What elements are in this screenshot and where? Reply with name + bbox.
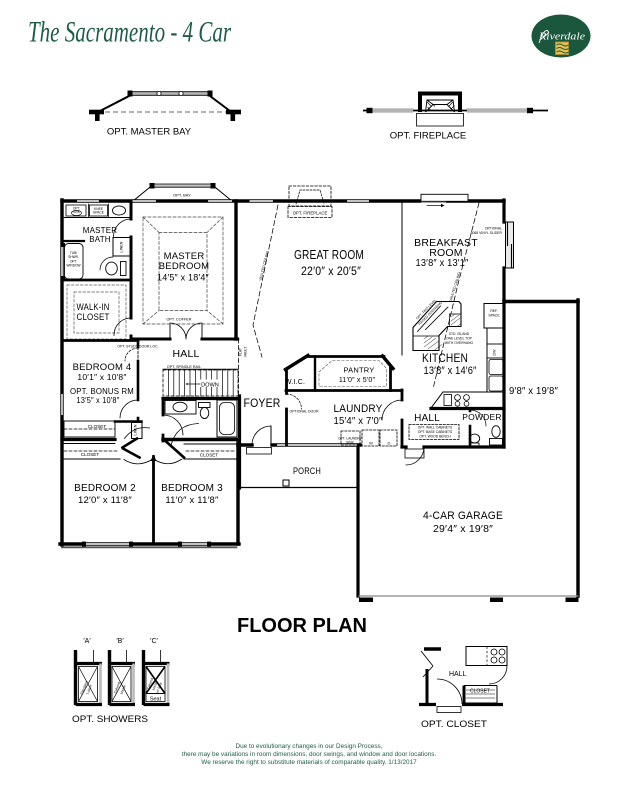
svg-text:BEDROOM: BEDROOM [159,261,210,272]
svg-text:LAUNDRY: LAUNDRY [334,403,383,415]
svg-text:KITCHEN: KITCHEN [422,351,468,365]
svg-text:HALL: HALL [449,671,467,678]
svg-text:WINDOW: WINDOW [67,264,81,268]
svg-text:LINEN: LINEN [134,424,138,435]
svg-text:OPT. BASE CABINETS: OPT. BASE CABINETS [418,430,453,434]
svg-text:′A′: ′A′ [83,638,91,645]
svg-text:OPT. STUDY DOOR LOC.: OPT. STUDY DOOR LOC. [117,345,158,349]
svg-text:Seat: Seat [150,697,162,703]
svg-text:OPT. FIREPLACE: OPT. FIREPLACE [390,131,467,142]
svg-text:OPT. WOOD BENCH: OPT. WOOD BENCH [419,435,451,439]
svg-text:Due to evolutionary changes in: Due to evolutionary changes in our Desig… [235,743,382,750]
svg-text:MASTER: MASTER [83,226,118,235]
svg-text:OPT. FIREPLACE: OPT. FIREPLACE [293,211,328,216]
svg-text:OPT. COFFER: OPT. COFFER [166,318,191,322]
svg-text:SNK: SNK [73,210,81,214]
svg-text:PANTRY: PANTRY [344,366,375,375]
svg-text:SPACE: SPACE [93,211,105,215]
svg-text:CLOSET: CLOSET [77,312,110,323]
svg-text:′C′: ′C′ [150,638,158,645]
svg-text:The Sacramento - 4 Car: The Sacramento - 4 Car [28,16,231,49]
svg-text:D: D [388,441,391,446]
svg-text:GREAT ROOM: GREAT ROOM [294,248,364,262]
svg-text:POWDER: POWDER [462,412,501,422]
svg-text:OPT. CLOSET: OPT. CLOSET [421,719,487,730]
svg-text:HALL: HALL [172,348,199,360]
svg-text:WITH OVERHANG: WITH OVERHANG [445,341,474,345]
svg-text:W.I.C.: W.I.C. [285,379,305,386]
svg-text:OPT. MASTER BAY: OPT. MASTER BAY [107,127,192,138]
svg-text:13′5″ x 10′8″: 13′5″ x 10′8″ [77,396,120,405]
svg-text:DW: DW [493,349,497,356]
svg-text:9′8″ x 19′8″: 9′8″ x 19′8″ [509,385,558,397]
svg-text:FLAT: FLAT [239,348,243,356]
svg-text:CLOSET: CLOSET [81,452,100,457]
svg-text:FOYER: FOYER [244,396,281,410]
svg-text:13′8″ x 14′6″: 13′8″ x 14′6″ [424,365,477,377]
svg-text:OPT. BONUS RM: OPT. BONUS RM [70,386,134,396]
svg-text:PORCH: PORCH [293,466,321,476]
svg-text:SINK: SINK [346,441,354,445]
svg-text:OPTIONAL DOOR: OPTIONAL DOOR [289,410,319,414]
svg-text:11′0″ x 5′0″: 11′0″ x 5′0″ [339,377,376,384]
svg-text:OPTIONAL: OPTIONAL [485,227,502,231]
svg-text:CLOSET: CLOSET [470,689,490,695]
svg-text:HALL: HALL [414,413,440,424]
svg-text:We reserve the right to substi: We reserve the right to substitute mater… [201,759,417,766]
svg-text:11′0″ x 11′8″: 11′0″ x 11′8″ [165,495,219,506]
svg-text:CLOSET: CLOSET [200,453,219,458]
svg-text:BEDROOM 2: BEDROOM 2 [74,483,136,494]
svg-text:REF.: REF. [490,309,497,313]
svg-text:ONE LEVEL TOP: ONE LEVEL TOP [446,336,473,340]
svg-text:6068 VINYL SLIDER: 6068 VINYL SLIDER [471,231,503,235]
svg-text:OPT. SHOWERS: OPT. SHOWERS [72,714,148,725]
svg-text:there may be variations in roo: there may be variations in room dimensio… [182,751,437,758]
svg-text:22′0″ x 20′5″: 22′0″ x 20′5″ [301,264,361,278]
svg-text:W: W [369,441,373,446]
svg-text:10′1″ x 10′8″: 10′1″ x 10′8″ [77,372,126,382]
svg-text:14′5″ x 18′4″: 14′5″ x 18′4″ [157,273,209,283]
svg-text:OPT. SPINDLE RAIL: OPT. SPINDLE RAIL [167,365,201,369]
svg-text:CLOSET: CLOSET [88,424,107,429]
svg-text:DOWN: DOWN [201,383,219,389]
svg-text:29′4″ x 19′8″: 29′4″ x 19′8″ [433,523,493,535]
svg-text:STD. ISLAND: STD. ISLAND [449,332,470,336]
svg-text:FLOOR PLAN: FLOOR PLAN [237,614,367,637]
svg-text:4-CAR GARAGE: 4-CAR GARAGE [423,510,503,522]
svg-text:OPT. WALL CABINETS: OPT. WALL CABINETS [418,426,453,430]
svg-text:′B′: ′B′ [116,638,124,645]
svg-text:12′0″ x 11′8″: 12′0″ x 11′8″ [78,495,132,506]
svg-text:LINEN: LINEN [120,241,124,252]
svg-text:BEDROOM 3: BEDROOM 3 [161,483,223,494]
svg-text:OPT. BAY: OPT. BAY [173,193,191,198]
svg-text:13′8″ x 13′1″: 13′8″ x 13′1″ [416,258,469,269]
svg-text:VAULT: VAULT [244,347,248,357]
svg-text:SPACE: SPACE [488,313,500,317]
svg-text:15′4″ x 7′0″: 15′4″ x 7′0″ [334,415,383,427]
svg-text:BATH: BATH [89,235,111,244]
